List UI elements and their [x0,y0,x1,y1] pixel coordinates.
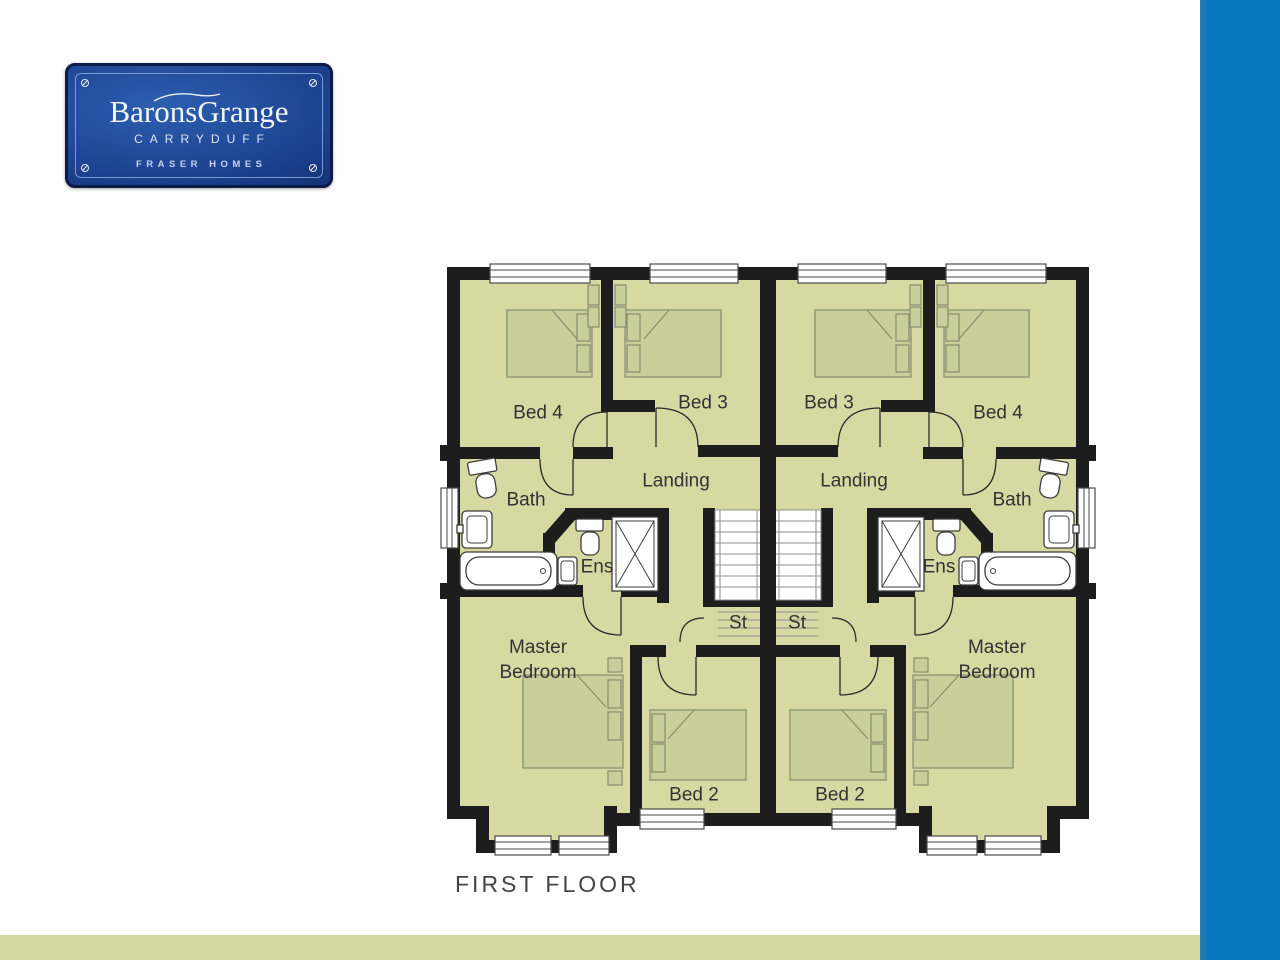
room-label-store-right: St [788,611,806,636]
brand-title: BaronsGrange [68,96,330,128]
party-wall [760,267,776,826]
room-label-bed4-right: Bed 4 [973,401,1023,426]
accent-stripe-right [1200,0,1280,960]
swash-flourish-icon [152,91,222,103]
room-label-master-right: Master Bedroom [958,635,1035,685]
floor-plan-caption: FIRST FLOOR [455,871,640,898]
plaque-text: BaronsGrange CARRYDUFF FRASER HOMES [68,96,330,170]
room-label-bed4-left: Bed 4 [513,401,563,426]
brand-plaque: BaronsGrange CARRYDUFF FRASER HOMES [65,63,333,188]
accent-stripe-bottom [0,935,1200,960]
room-label-store-left: St [729,611,747,636]
room-label-bed3-left: Bed 3 [678,391,728,416]
floor-plan-drawing [440,255,1100,870]
floor-plan: Bed 4 Bed 3 Bed 3 Bed 4 Landing Landing … [440,255,1100,870]
master-label-line1: Master [509,637,567,658]
master-label-line2: Bedroom [499,662,576,683]
room-label-master-left: Master Bedroom [499,635,576,685]
room-label-bed3-right: Bed 3 [804,391,854,416]
brand-tagline: FRASER HOMES [68,159,330,170]
room-label-landing-left: Landing [642,469,710,494]
screw-icon [81,79,89,87]
room-label-landing-right: Landing [820,469,888,494]
room-label-bath-left: Bath [506,488,545,513]
brand-subtitle: CARRYDUFF [68,132,330,146]
room-label-bed2-left: Bed 2 [669,783,719,808]
room-label-ens-left: Ens [581,555,614,580]
master-label-line2: Bedroom [958,662,1035,683]
room-label-bath-right: Bath [992,488,1031,513]
room-label-ens-right: Ens [923,555,956,580]
room-label-bed2-right: Bed 2 [815,783,865,808]
screw-icon [309,79,317,87]
master-label-line1: Master [968,637,1026,658]
